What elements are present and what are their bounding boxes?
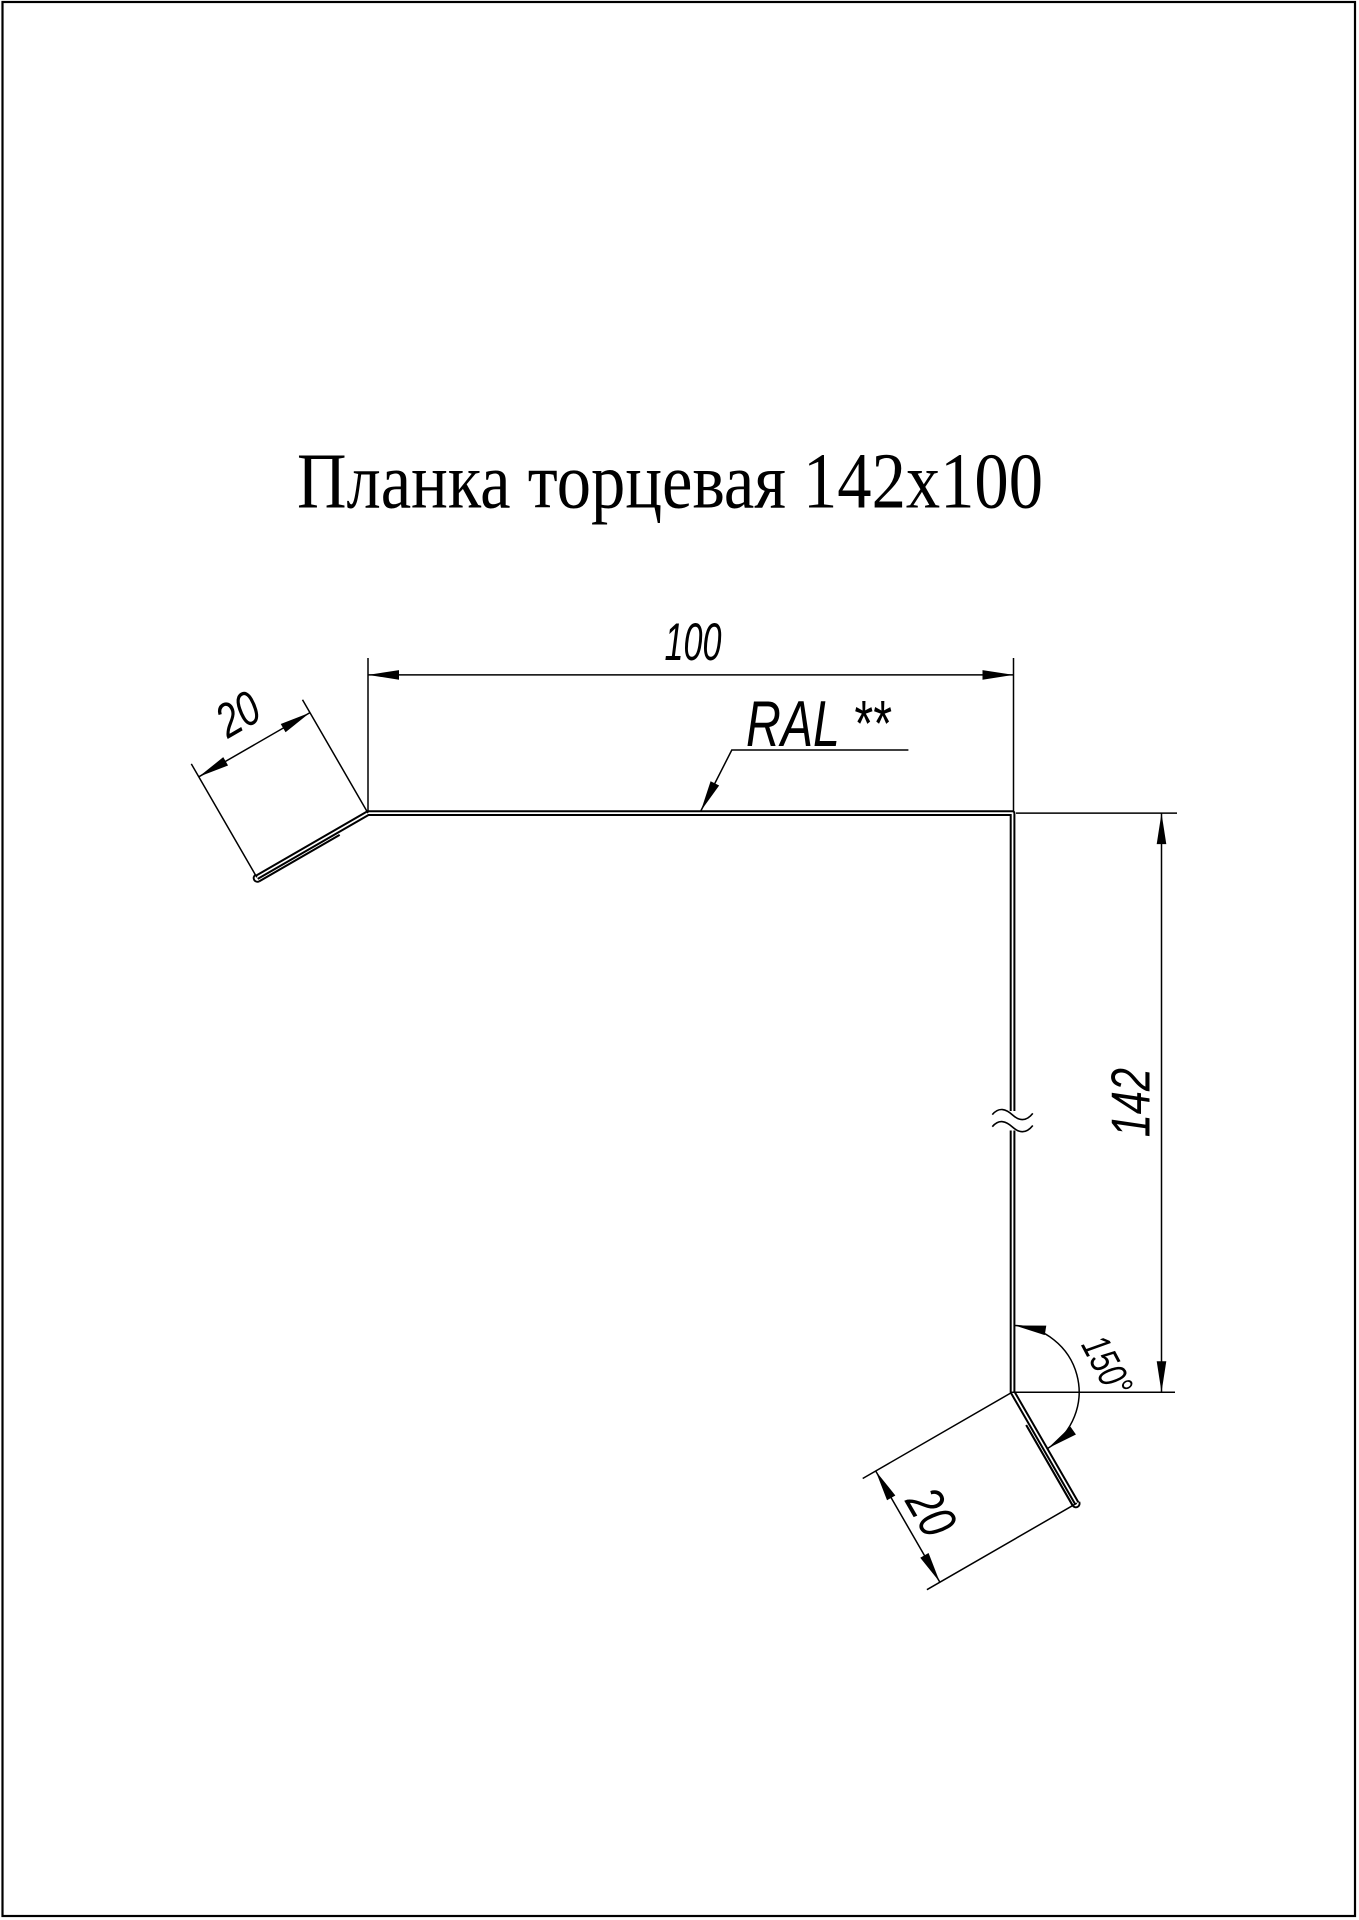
svg-text:20: 20 [206, 681, 270, 748]
svg-text:100: 100 [665, 613, 722, 672]
svg-text:142: 142 [1100, 1068, 1162, 1137]
svg-text:RAL **: RAL ** [746, 688, 891, 760]
svg-text:Планка торцевая 142х100: Планка торцевая 142х100 [297, 439, 1043, 526]
svg-text:20: 20 [894, 1477, 968, 1547]
